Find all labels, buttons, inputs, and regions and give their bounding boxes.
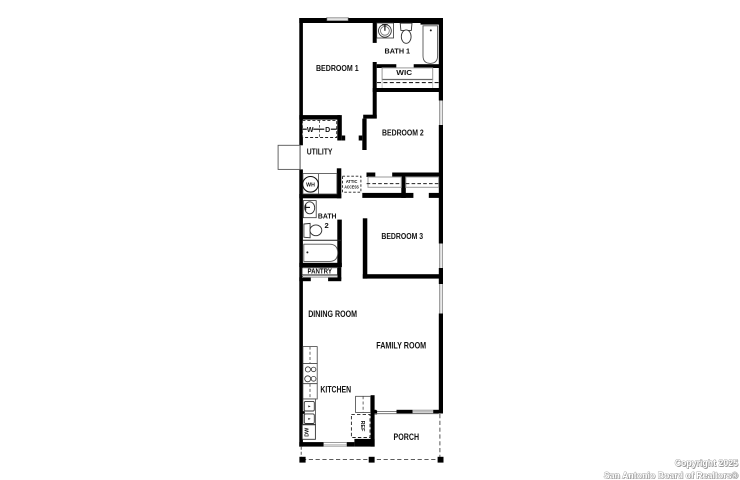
svg-text:BEDROOM 1: BEDROOM 1 — [316, 64, 359, 73]
svg-text:ACCESS: ACCESS — [344, 184, 359, 189]
svg-text:FAMILY ROOM: FAMILY ROOM — [376, 341, 426, 351]
svg-text:BATH: BATH — [318, 211, 337, 220]
svg-text:DINING ROOM: DINING ROOM — [308, 309, 357, 319]
svg-text:WH: WH — [306, 182, 315, 188]
svg-text:PANTRY: PANTRY — [308, 269, 333, 276]
svg-text:W: W — [307, 127, 314, 134]
svg-text:PORCH: PORCH — [394, 432, 420, 442]
svg-text:ATTIC: ATTIC — [346, 179, 358, 184]
svg-text:WIC: WIC — [396, 68, 412, 77]
svg-text:BEDROOM 2: BEDROOM 2 — [382, 129, 424, 138]
svg-text:San Antonio Board of Realtors®: San Antonio Board of Realtors® — [604, 470, 738, 480]
svg-text:BATH 1: BATH 1 — [385, 47, 411, 56]
svg-text:2: 2 — [324, 221, 328, 230]
svg-text:KITCHEN: KITCHEN — [320, 385, 351, 395]
svg-text:REF: REF — [359, 421, 365, 432]
svg-text:BEDROOM 3: BEDROOM 3 — [381, 232, 423, 241]
svg-text:UTILITY: UTILITY — [307, 147, 333, 156]
svg-text:D: D — [325, 127, 330, 134]
svg-text:Copyright 2025: Copyright 2025 — [675, 458, 739, 469]
svg-text:DW: DW — [305, 427, 311, 437]
